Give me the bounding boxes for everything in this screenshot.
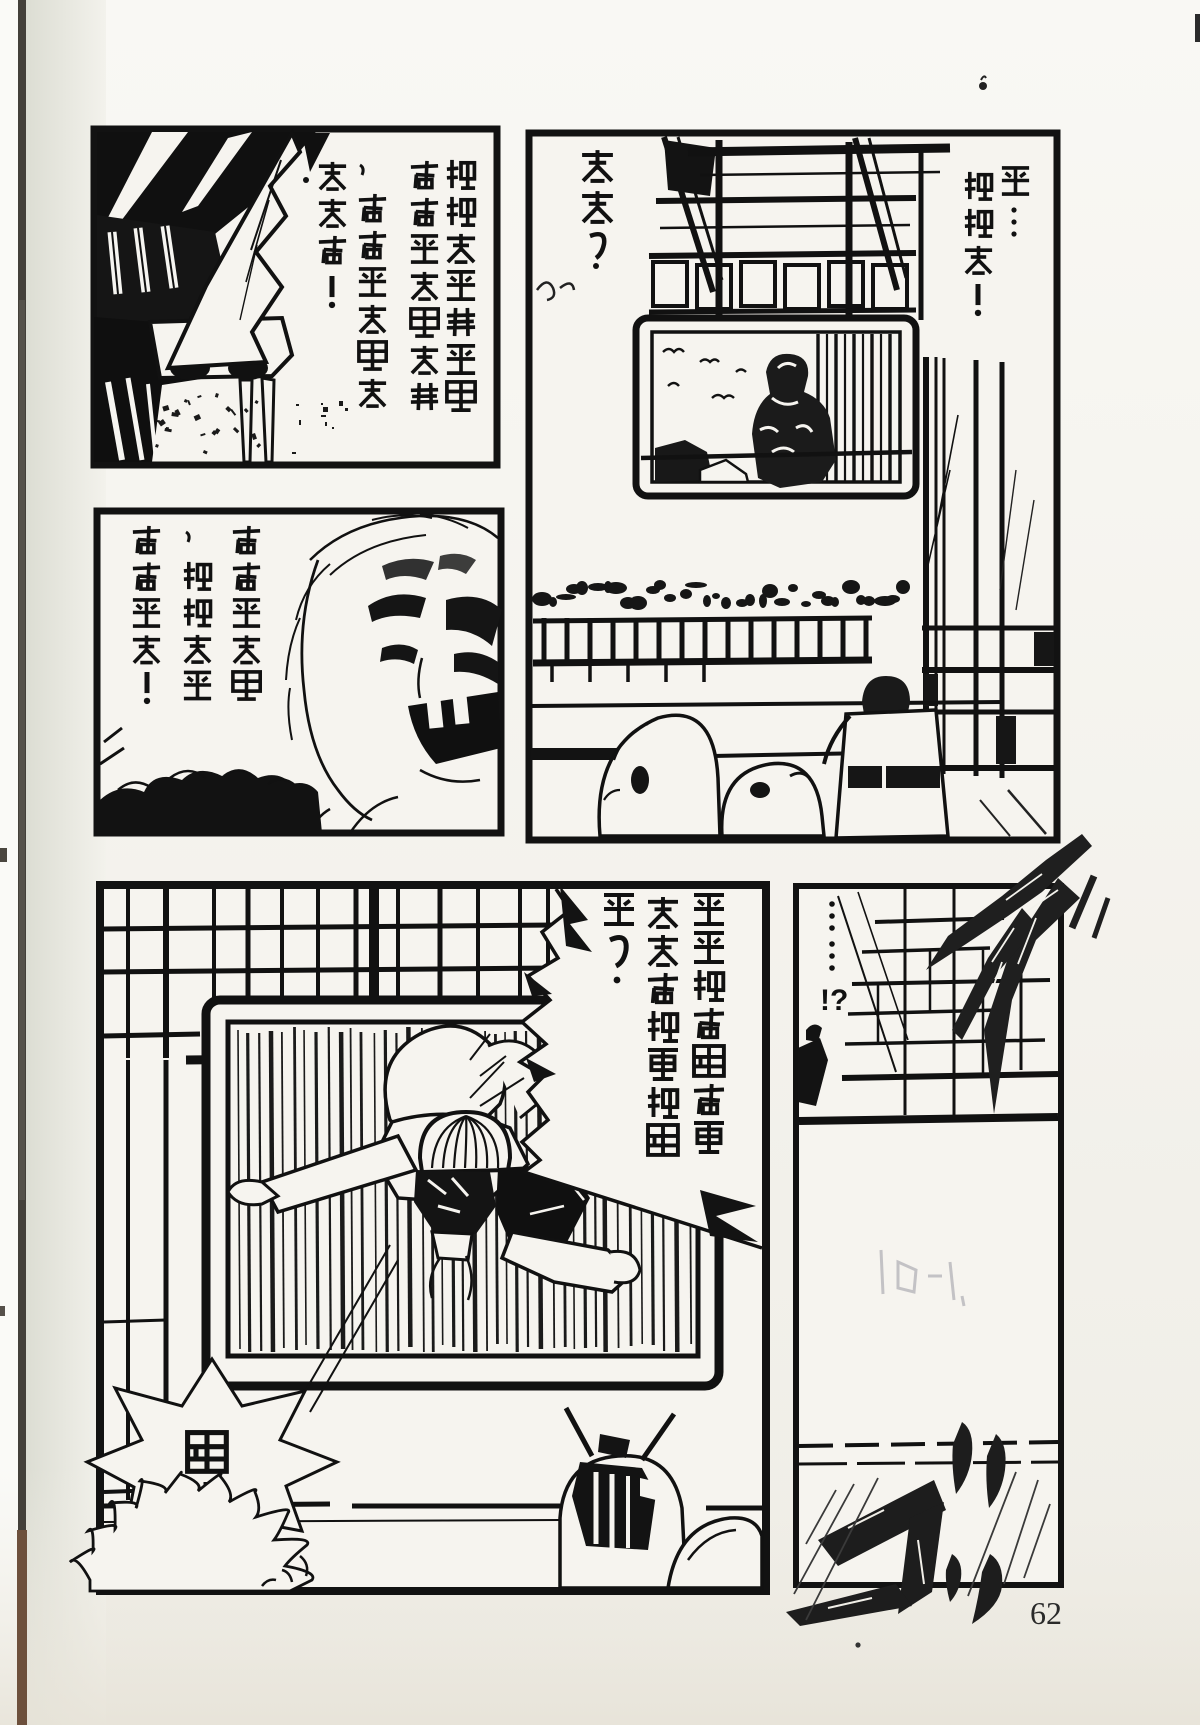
svg-text:!?: !? — [820, 984, 848, 1017]
svg-text:62: 62 — [1030, 1595, 1062, 1631]
